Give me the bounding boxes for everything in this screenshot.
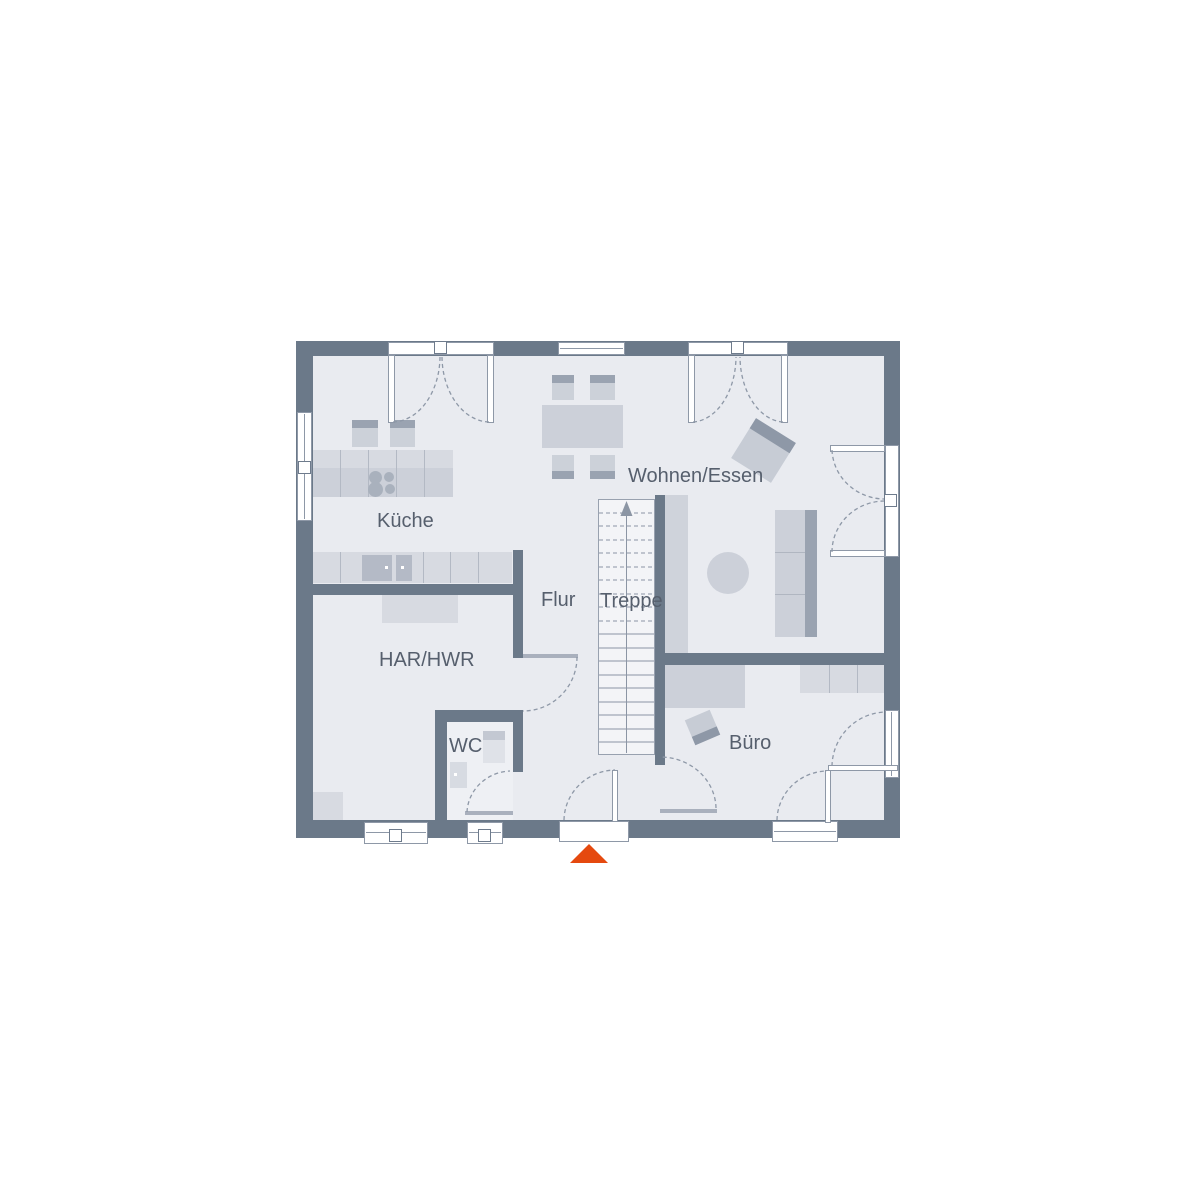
room-label-wohnen-essen: Wohnen/Essen (628, 466, 763, 487)
kitchen-counter (313, 552, 512, 583)
room-label-buero: Büro (729, 733, 771, 754)
sofa-backrest (805, 510, 817, 637)
har-door-leaf (523, 654, 578, 658)
sofa-divider (775, 552, 805, 553)
dining-chair (552, 375, 574, 400)
sofa-divider (775, 594, 805, 595)
door-leaf (688, 355, 695, 423)
door-leaf (828, 765, 898, 771)
dining-chair (552, 455, 574, 479)
sink-dot (385, 566, 388, 569)
bar-stool (352, 420, 378, 447)
toilet (450, 762, 467, 788)
door-handle-icon (731, 341, 744, 354)
shelf-divider (829, 665, 830, 693)
island-divider (396, 450, 397, 497)
wc-vanity (483, 731, 505, 763)
room-label-har-hwr: HAR/HWR (379, 650, 475, 671)
dining-chair (590, 455, 615, 479)
entrance-marker-icon (570, 844, 608, 863)
door-leaf (781, 355, 788, 423)
buero-door-leaf (660, 809, 717, 813)
wall-wc-left (435, 710, 447, 820)
door-leaf (388, 355, 395, 423)
storage-shelf (382, 595, 458, 623)
door-handle-icon (884, 494, 897, 507)
bar-stool (390, 420, 415, 447)
window-handle-icon (298, 461, 311, 474)
appliance-dot (401, 566, 404, 569)
window-top (558, 342, 625, 355)
cooktop-burner-icon (385, 484, 395, 494)
island-divider (340, 450, 341, 497)
wall-kitchen-har (313, 584, 523, 595)
wall-wc-top (435, 710, 523, 722)
door-leaf (830, 550, 885, 557)
sofa-seat (775, 510, 805, 637)
desk (662, 665, 745, 708)
round-coffee-table (707, 552, 749, 594)
room-label-wc: WC (449, 736, 482, 757)
door-leaf (487, 355, 494, 423)
door-leaf (830, 445, 885, 452)
door-leaf (825, 770, 831, 823)
room-label-flur: Flur (541, 590, 575, 611)
office-shelf (800, 665, 884, 693)
corner-cabinet (313, 792, 343, 820)
kitchen-island (313, 468, 453, 497)
cooktop-burner-icon (384, 472, 394, 482)
wall-flur-har (513, 550, 523, 658)
stair-side-band (665, 495, 688, 653)
room-label-kueche: Küche (377, 511, 434, 532)
window-handle-icon (478, 829, 491, 842)
terrace-door-bottom (772, 821, 838, 842)
kitchen-island-top (313, 450, 453, 468)
dining-table (542, 405, 623, 448)
door-handle-icon (434, 341, 447, 354)
door-leaf (612, 770, 618, 822)
staircase (598, 499, 655, 755)
shelf-divider (857, 665, 858, 693)
island-divider (424, 450, 425, 497)
counter-divider (340, 552, 341, 583)
toilet-dot (454, 773, 457, 776)
wall-buero-top (655, 653, 884, 665)
window-handle-icon (389, 829, 402, 842)
counter-divider (450, 552, 451, 583)
floor-plan-canvas: Küche Wohnen/Essen Flur Treppe HAR/HWR W… (0, 0, 1200, 1200)
kitchen-appliance (396, 555, 412, 581)
entrance-door (559, 821, 629, 842)
counter-divider (478, 552, 479, 583)
room-label-treppe: Treppe (600, 591, 663, 612)
dining-chair (590, 375, 615, 400)
wc-door-leaf (465, 811, 513, 815)
cooktop-burner-icon (368, 482, 383, 497)
counter-divider (423, 552, 424, 583)
wall-stairwell (655, 495, 665, 765)
